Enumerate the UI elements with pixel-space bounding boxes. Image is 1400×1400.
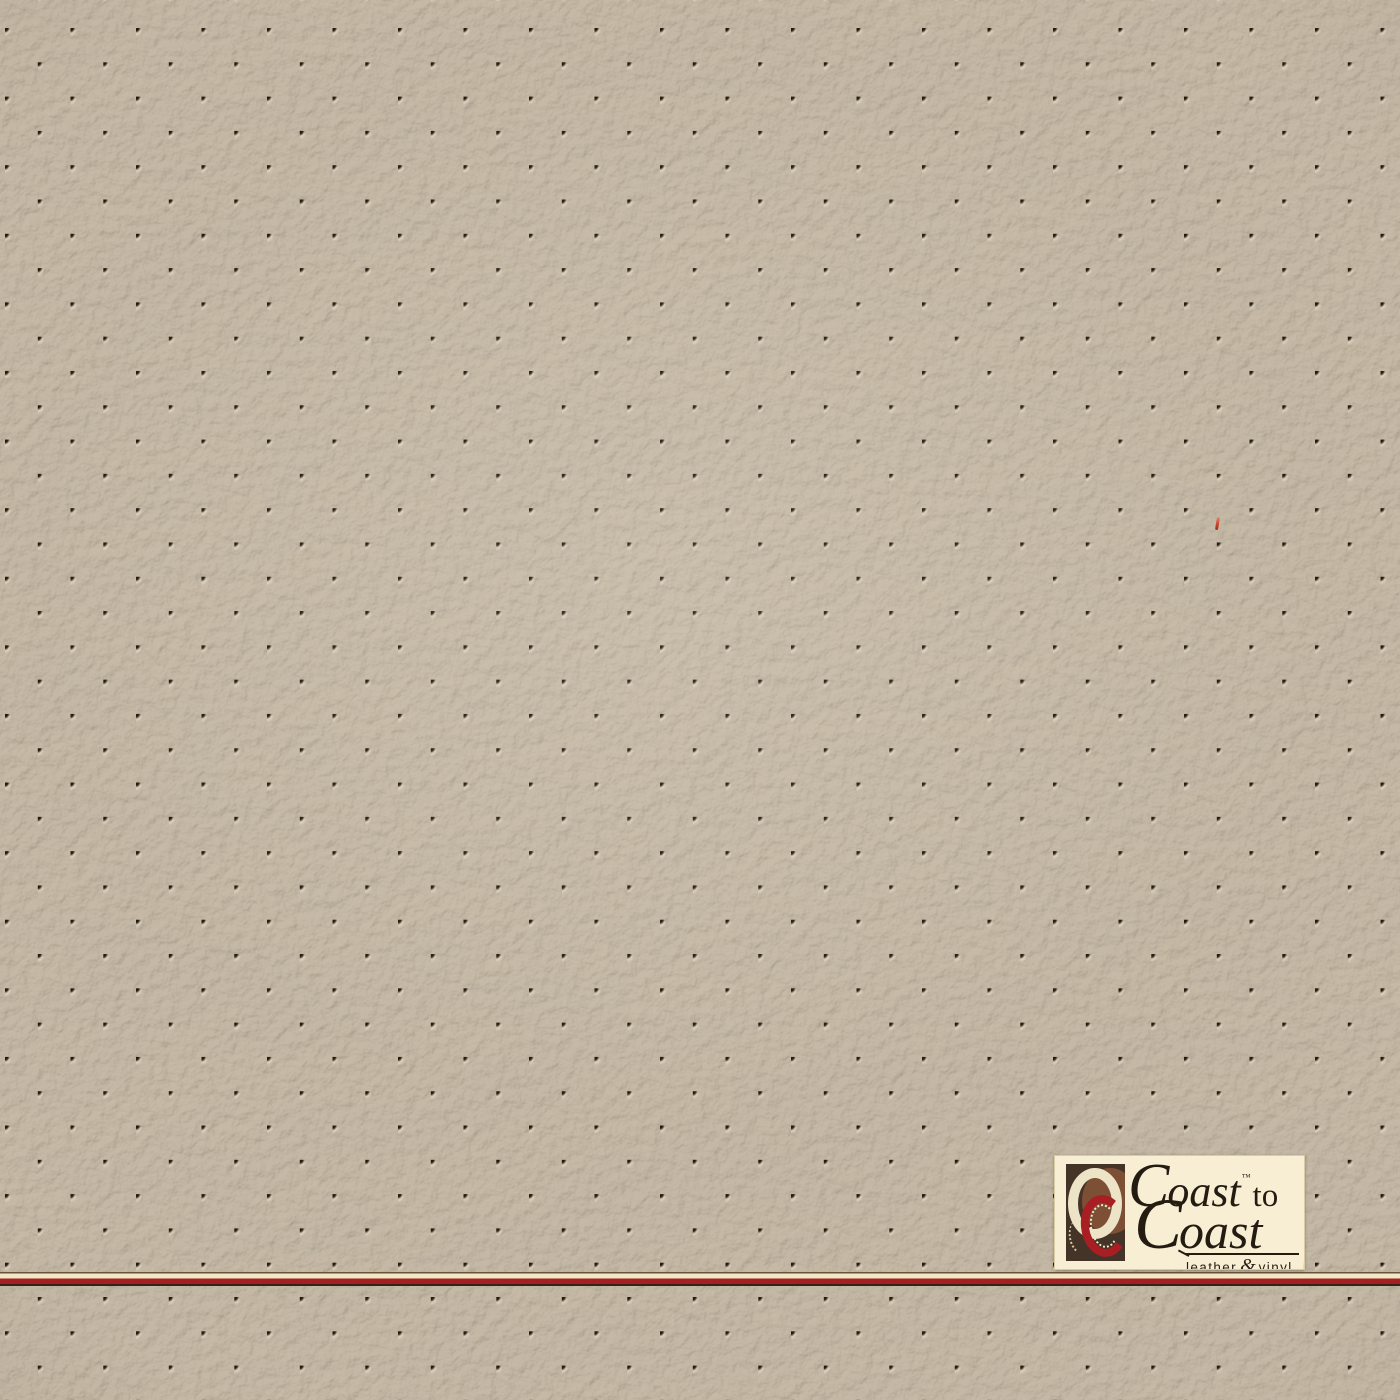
tagline-vinyl: vinyl, inc [1259, 1260, 1305, 1270]
accent-stripe [0, 1272, 1400, 1286]
tagline-ampersand: & [1240, 1255, 1256, 1270]
logo-card: Coast™to Coast leather&vinyl, inc [1054, 1155, 1305, 1270]
trademark-symbol: ™ [1242, 1173, 1251, 1182]
tagline-leather: leather [1186, 1260, 1237, 1270]
logo-tagline: leather&vinyl, inc [1186, 1255, 1305, 1270]
logo-emblem [1066, 1164, 1125, 1261]
coast-bottom-rest: oast [1179, 1206, 1262, 1256]
fabric-photo: Coast™to Coast leather&vinyl, inc [0, 0, 1400, 1400]
coast-bottom-capital: C [1134, 1196, 1182, 1254]
logo-word-coast-bottom: Coast [1134, 1196, 1262, 1256]
stitch-dots-icon [1087, 1202, 1121, 1249]
